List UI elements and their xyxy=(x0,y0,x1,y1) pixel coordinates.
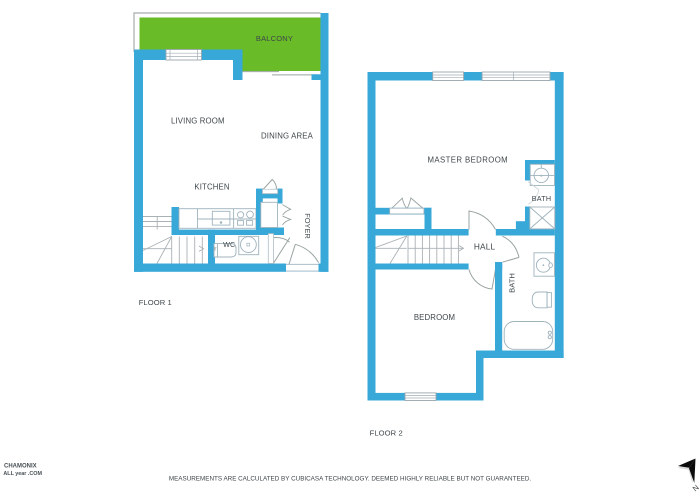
svg-text:LIVING ROOM: LIVING ROOM xyxy=(171,117,225,126)
svg-text:BEDROOM: BEDROOM xyxy=(414,313,455,322)
svg-text:FLOOR 1: FLOOR 1 xyxy=(139,298,172,307)
svg-text:BALCONY: BALCONY xyxy=(256,34,293,43)
svg-text:ALL year .COM: ALL year .COM xyxy=(3,471,42,477)
svg-text:FOYER: FOYER xyxy=(303,213,312,238)
svg-text:MEASUREMENTS ARE CALCULATED BY: MEASUREMENTS ARE CALCULATED BY CUBICASA … xyxy=(169,476,532,483)
svg-text:WC: WC xyxy=(223,240,235,249)
svg-text:HALL: HALL xyxy=(474,242,496,252)
svg-text:BATH: BATH xyxy=(508,273,517,293)
svg-text:CHAMONIX: CHAMONIX xyxy=(4,464,37,470)
svg-text:DINING AREA: DINING AREA xyxy=(261,132,314,141)
svg-text:FLOOR 2: FLOOR 2 xyxy=(370,428,403,437)
svg-text:KITCHEN: KITCHEN xyxy=(194,182,229,191)
svg-text:BATH: BATH xyxy=(532,194,551,203)
svg-text:MASTER BEDROOM: MASTER BEDROOM xyxy=(428,156,509,165)
